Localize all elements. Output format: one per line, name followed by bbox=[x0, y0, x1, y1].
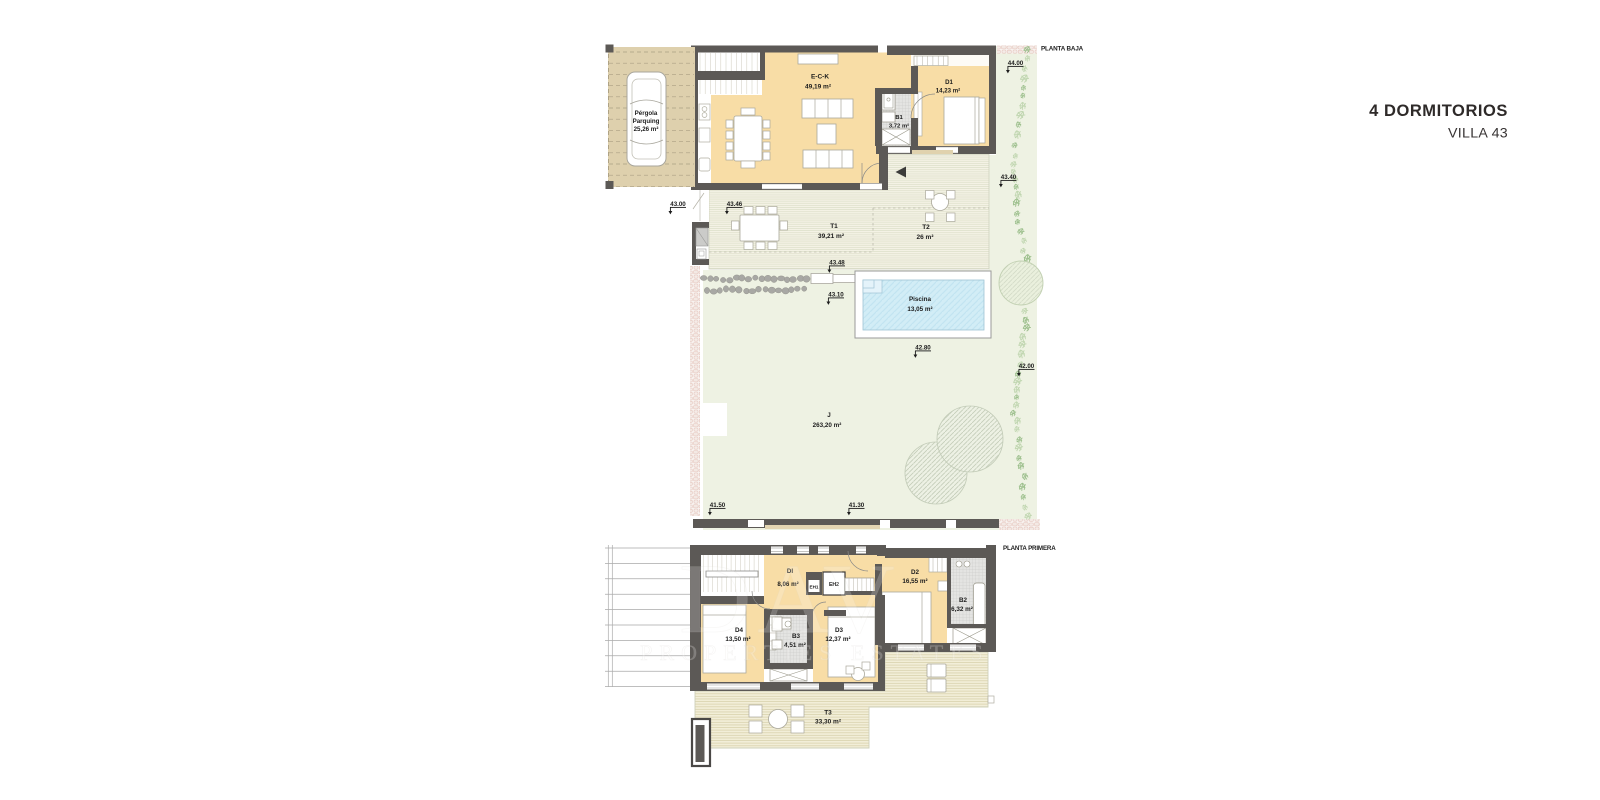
svg-text:Piscina: Piscina bbox=[909, 296, 932, 303]
svg-text:J: J bbox=[827, 412, 831, 419]
svg-text:D2: D2 bbox=[911, 569, 920, 576]
svg-text:PLANTA PRIMERA: PLANTA PRIMERA bbox=[1003, 545, 1056, 552]
svg-text:E-C-K: E-C-K bbox=[811, 74, 829, 81]
svg-text:T1: T1 bbox=[830, 223, 838, 230]
svg-text:T3: T3 bbox=[824, 710, 832, 717]
svg-text:25,26 m²: 25,26 m² bbox=[634, 126, 659, 133]
svg-text:D1: D1 bbox=[945, 79, 953, 86]
svg-text:PROPERTIES ESTATES: PROPERTIES ESTATES bbox=[640, 640, 990, 665]
svg-text:T2: T2 bbox=[922, 224, 930, 231]
svg-text:4 DORMITORIOS: 4 DORMITORIOS bbox=[1369, 102, 1508, 120]
svg-text:3,72 m²: 3,72 m² bbox=[889, 123, 909, 130]
svg-text:13,05 m²: 13,05 m² bbox=[907, 306, 932, 313]
svg-text:B2: B2 bbox=[959, 597, 968, 604]
svg-text:14,23 m²: 14,23 m² bbox=[936, 88, 960, 95]
svg-text:49,19 m²: 49,19 m² bbox=[805, 84, 832, 91]
svg-text:16,55 m²: 16,55 m² bbox=[902, 578, 927, 585]
svg-text:VILLA 43: VILLA 43 bbox=[1448, 126, 1508, 142]
svg-text:39,21 m²: 39,21 m² bbox=[818, 233, 845, 240]
svg-text:33,30 m²: 33,30 m² bbox=[815, 719, 842, 726]
svg-text:Pérgola: Pérgola bbox=[635, 110, 658, 117]
svg-text:263,20 m²: 263,20 m² bbox=[813, 422, 842, 429]
svg-text:Parquing: Parquing bbox=[633, 118, 660, 125]
svg-text:PLANTA BAJA: PLANTA BAJA bbox=[1041, 46, 1084, 53]
svg-text:44.00: 44.00 bbox=[1008, 60, 1024, 67]
svg-text:26 m²: 26 m² bbox=[917, 234, 935, 241]
svg-text:6,32 m²: 6,32 m² bbox=[951, 606, 973, 613]
svg-text:DAV: DAV bbox=[679, 543, 901, 654]
svg-text:B1: B1 bbox=[895, 115, 903, 121]
